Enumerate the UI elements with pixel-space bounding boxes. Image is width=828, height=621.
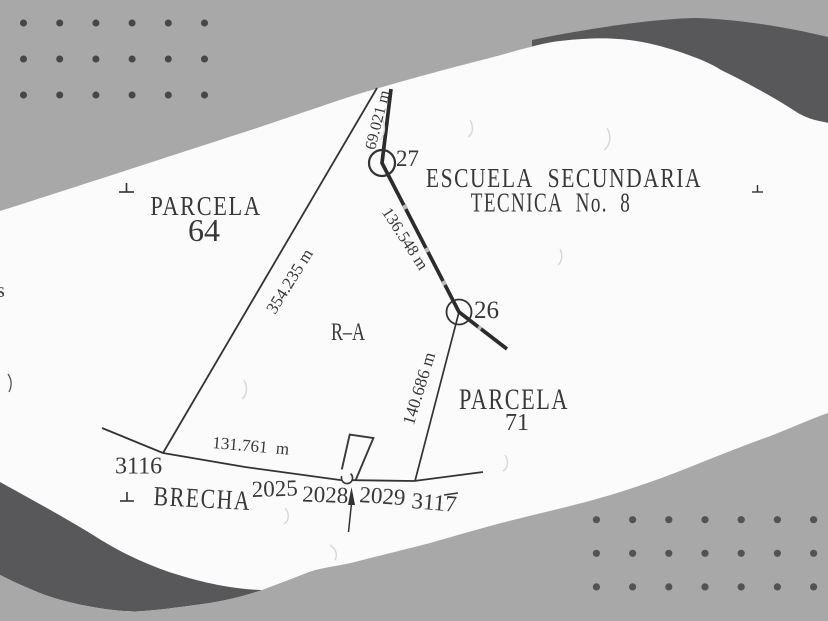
- svg-text:3117: 3117: [411, 488, 458, 517]
- svg-text:TECNICA No. 8: TECNICA No. 8: [471, 188, 631, 218]
- svg-text:3116: 3116: [115, 454, 162, 480]
- svg-text:2028: 2028: [302, 482, 349, 509]
- svg-text:71: 71: [505, 410, 529, 436]
- svg-text:27: 27: [396, 146, 419, 171]
- svg-text:R–A: R–A: [331, 318, 365, 346]
- svg-text:2025: 2025: [251, 475, 298, 502]
- svg-text:2029: 2029: [359, 482, 407, 510]
- svg-text:s: s: [0, 280, 5, 302]
- svg-text:64: 64: [188, 212, 220, 248]
- svg-text:26: 26: [474, 297, 499, 324]
- svg-text:BRECHA: BRECHA: [153, 482, 252, 517]
